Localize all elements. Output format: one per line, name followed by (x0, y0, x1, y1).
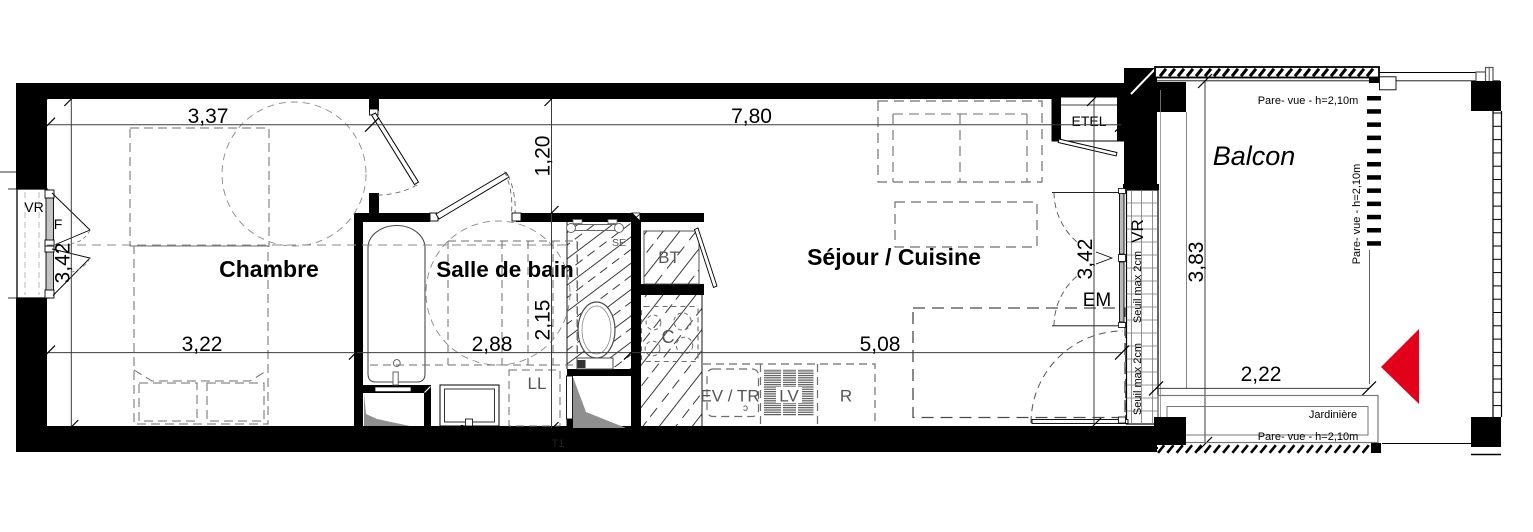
svg-text:3,22: 3,22 (182, 333, 223, 356)
svg-text:Salle de bain: Salle de bain (436, 257, 574, 282)
svg-text:SE: SE (612, 237, 626, 249)
svg-text:2,15: 2,15 (532, 300, 555, 341)
svg-text:2,22: 2,22 (1241, 363, 1282, 386)
svg-text:7,80: 7,80 (731, 105, 772, 128)
svg-text:LL: LL (528, 374, 547, 393)
svg-text:Pare- vue - h=2,10m: Pare- vue - h=2,10m (1351, 164, 1363, 265)
svg-text:1,20: 1,20 (532, 136, 555, 177)
svg-text:Seuil max 2cm: Seuil max 2cm (1132, 343, 1144, 415)
svg-text:Seuil max 2cm: Seuil max 2cm (1132, 251, 1144, 323)
svg-text:Pare- vue - h=2,10m: Pare- vue - h=2,10m (1258, 431, 1359, 443)
svg-text:3,37: 3,37 (188, 105, 229, 128)
svg-text:EV / TR: EV / TR (700, 387, 759, 406)
svg-text:Balcon: Balcon (1213, 141, 1296, 171)
svg-text:Jardinière: Jardinière (1309, 409, 1357, 421)
svg-text:VR: VR (24, 199, 43, 215)
svg-text:Pare- vue - h=2,10m: Pare- vue - h=2,10m (1258, 95, 1359, 107)
svg-text:EM: EM (1083, 290, 1112, 311)
svg-text:Séjour / Cuisine: Séjour / Cuisine (807, 244, 981, 270)
svg-text:5,08: 5,08 (860, 333, 901, 356)
svg-text:T1: T1 (552, 438, 565, 450)
svg-text:R: R (840, 387, 852, 406)
svg-text:3,42: 3,42 (1074, 239, 1097, 280)
svg-text:3,42: 3,42 (52, 243, 75, 284)
svg-text:VR: VR (1128, 219, 1147, 243)
svg-text:2,88: 2,88 (472, 333, 513, 356)
svg-text:BT: BT (658, 248, 680, 267)
svg-text:Chambre: Chambre (219, 256, 319, 282)
svg-text:3,83: 3,83 (1185, 242, 1208, 283)
svg-text:ETEL: ETEL (1071, 113, 1106, 129)
svg-text:F: F (54, 216, 63, 232)
svg-text:ɔ: ɔ (743, 403, 748, 414)
svg-text:C: C (662, 327, 675, 347)
svg-text:LV: LV (779, 387, 799, 406)
